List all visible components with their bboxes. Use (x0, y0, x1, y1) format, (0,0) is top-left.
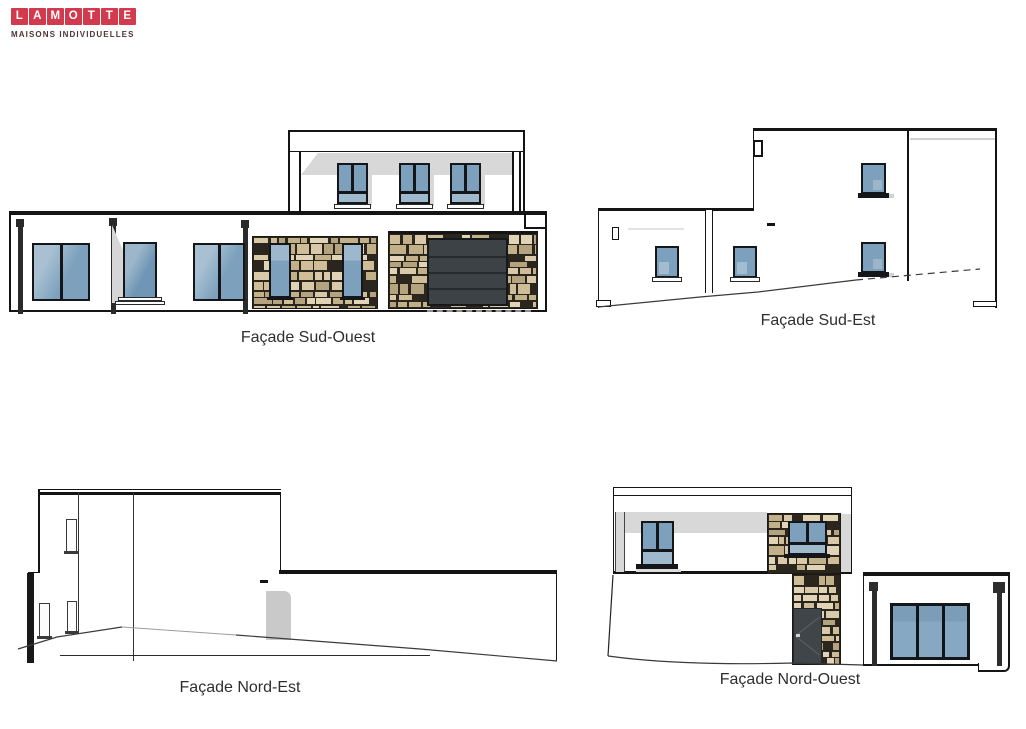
fse-window-sill (652, 277, 682, 282)
fso-door-step (115, 301, 165, 305)
fne-narrow-window-lower-right (67, 601, 77, 632)
stone-block (282, 306, 295, 309)
stone-block (823, 620, 834, 625)
fso-door-window (123, 242, 157, 299)
stone-block (510, 284, 516, 293)
stone-block (833, 643, 839, 651)
ground-line-nord-est-mid (122, 627, 236, 635)
fse-lower-window (861, 242, 886, 273)
stone-block (769, 557, 775, 564)
stone-block (301, 238, 307, 243)
stone-block (254, 255, 268, 260)
fso-floor-line (9, 211, 547, 215)
fse-window-sill (858, 193, 889, 198)
stone-block (316, 298, 331, 304)
stone-block (769, 565, 776, 570)
stone-block (301, 261, 313, 270)
stone-block (412, 276, 428, 283)
fso-garage-door (427, 238, 508, 306)
facade-label-nord-est: Façade Nord-Est (180, 679, 301, 697)
fse-wall-detail (612, 227, 619, 240)
stone-block (819, 595, 829, 601)
fne-roof-line-thin (38, 489, 281, 490)
stone-block (403, 235, 412, 244)
fso-window-sill (334, 204, 371, 209)
fno-door-handle (796, 634, 800, 637)
fso-step-line (524, 227, 547, 229)
stone-block (535, 245, 536, 254)
stone-block (254, 238, 268, 243)
stone-block (315, 255, 330, 260)
stone-block (797, 565, 805, 570)
fso-post-right-2 (519, 152, 521, 214)
stone-block (316, 282, 330, 290)
fso-window-sill (447, 204, 484, 209)
fse-sill-shadow (889, 273, 894, 277)
fse-faint-line (628, 228, 684, 230)
stone-block (533, 268, 536, 274)
stone-block (835, 603, 839, 610)
stone-block (409, 302, 421, 307)
facade-label-nord-ouest: Façade Nord-Ouest (720, 671, 861, 689)
stone-block (302, 282, 314, 290)
fso-downspout (18, 221, 23, 314)
stone-block (832, 652, 839, 657)
fno-door-line (796, 617, 820, 636)
stone-block (512, 276, 525, 283)
fso-step-edge (524, 214, 526, 228)
fno-upper-window-left (641, 521, 674, 566)
stone-block (784, 515, 792, 521)
fne-roof-line (38, 492, 281, 495)
logo-tile: T (101, 8, 118, 25)
logo-tile: A (29, 8, 46, 25)
facade-label-sud-est: Façade Sud-Est (761, 312, 876, 330)
logo-tile: O (65, 8, 82, 25)
stone-block (390, 262, 401, 267)
fne-side-door (266, 591, 291, 640)
fse-window-2 (733, 246, 757, 278)
stone-block (510, 262, 526, 267)
stone-block (519, 245, 532, 254)
stone-block (534, 235, 536, 244)
fno-stone-window (788, 521, 827, 555)
stone-block (829, 587, 837, 593)
fso-stone-window-2 (342, 243, 363, 298)
stone-block (533, 302, 536, 307)
fse-footing-left (596, 300, 611, 307)
fne-window-sill (64, 551, 79, 554)
stone-block (803, 515, 821, 521)
logo-letter-tiles: L A M O T T E (11, 8, 136, 25)
fne-window-sill (65, 631, 79, 634)
fno-corner-shadow (615, 512, 625, 572)
stone-block (267, 306, 280, 309)
stone-block (324, 244, 333, 253)
fne-wall-corner-1 (78, 492, 79, 634)
fse-roof-detail (753, 140, 763, 157)
stone-block (834, 530, 839, 535)
stone-block (509, 235, 518, 244)
fne-shadow-edge (27, 573, 34, 663)
logo-subtitle: MAISONS INDIVIDUELLES (11, 30, 135, 39)
fne-left-edge (38, 489, 40, 573)
fno-door-line (796, 636, 820, 655)
stone-block (805, 587, 817, 593)
fso-window-sill (396, 204, 433, 209)
fne-low-right-edge (556, 570, 558, 661)
stone-block (525, 256, 536, 261)
stone-block (390, 302, 396, 307)
stone-block (406, 256, 418, 261)
stone-block (362, 306, 376, 309)
stone-block (390, 245, 406, 254)
fse-footing-right (973, 301, 997, 307)
fse-sill-shadow (889, 194, 894, 198)
stone-block (296, 255, 313, 260)
fso-window-left (32, 243, 90, 301)
fso-parapet (288, 130, 525, 153)
stone-block (297, 244, 309, 253)
fso-stone-window-1 (269, 243, 291, 298)
stone-block (527, 276, 536, 283)
fse-window-sill (730, 277, 760, 282)
fne-narrow-window-upper (66, 519, 77, 552)
stone-block (515, 295, 527, 300)
fso-window-right (193, 243, 245, 301)
stone-block (819, 587, 827, 593)
fne-narrow-window-lower-left (39, 603, 50, 637)
stone-block (321, 306, 339, 309)
fso-post-right (512, 152, 514, 214)
fne-low-roof-line (279, 570, 557, 574)
stone-block (313, 306, 319, 309)
stone-block (366, 272, 376, 280)
stone-block (348, 306, 360, 309)
fso-window-sill (267, 297, 293, 300)
stone-block (314, 261, 327, 270)
stone-block (823, 652, 829, 657)
fso-upper-window-1 (337, 163, 368, 204)
stone-block (828, 537, 839, 545)
stone-block (823, 515, 839, 521)
fse-window-sill (858, 272, 889, 277)
stone-block (390, 235, 400, 244)
stone-block (803, 595, 817, 601)
fno-base-step (978, 663, 1010, 672)
stone-block (794, 576, 804, 585)
stone-block (310, 238, 328, 243)
fso-window-shadow (430, 166, 434, 206)
stone-block (779, 537, 784, 545)
stone-block (297, 306, 311, 309)
fse-wall-joint (907, 128, 909, 281)
fne-right-edge (280, 492, 282, 572)
stone-block (518, 284, 530, 293)
logo-tile: M (47, 8, 64, 25)
fse-tall-block (753, 128, 997, 308)
stone-block (400, 268, 416, 274)
stone-block (826, 611, 839, 618)
fso-window-shadow (481, 166, 485, 206)
stone-block (520, 268, 531, 274)
fno-window-sill (784, 554, 830, 558)
stone-block (301, 292, 314, 297)
fne-window-sill (37, 636, 52, 639)
stone-block (769, 522, 780, 528)
fse-vent-dash (767, 223, 775, 226)
stone-block (390, 276, 396, 283)
stone-block (794, 595, 801, 601)
stone-block (254, 306, 265, 309)
stone-block (794, 587, 804, 593)
stone-block (390, 268, 397, 274)
stone-block (371, 238, 376, 243)
fno-downspout (872, 590, 877, 666)
stone-block (415, 235, 426, 244)
stone-block (390, 284, 398, 293)
fno-sill-shadow (636, 569, 681, 573)
stone-block (324, 272, 330, 280)
stone-block (254, 282, 263, 290)
stone-block (311, 244, 322, 253)
logo-tile: L (11, 8, 28, 25)
fso-upper-window-2 (399, 163, 430, 204)
stone-block (411, 284, 425, 293)
stone-block (400, 284, 408, 293)
fso-upper-window-3 (450, 163, 481, 204)
stone-block (398, 302, 407, 307)
stone-block (419, 262, 427, 267)
stone-block (331, 238, 339, 243)
stone-block (307, 298, 315, 304)
stone-block (390, 295, 396, 300)
stone-block (769, 537, 778, 545)
stone-block (295, 298, 304, 304)
stone-block (409, 245, 422, 254)
stone-block (833, 627, 839, 635)
stone-block (769, 530, 785, 535)
fse-upper-window (861, 163, 886, 194)
stone-block (315, 292, 327, 297)
stone-block (403, 262, 417, 267)
wall-edge-nord-ouest (608, 575, 613, 656)
stone-block (836, 636, 839, 641)
fno-downspout (997, 592, 1002, 666)
stone-block (826, 576, 834, 585)
fno-bay-window (890, 603, 970, 660)
stone-block (315, 272, 322, 280)
elevation-sheet: L A M O T T E MAISONS INDIVIDUELLES (0, 0, 1026, 729)
fso-dashed-ground (427, 310, 531, 312)
stone-block (254, 272, 269, 280)
fno-stone-shadow (841, 514, 851, 572)
fso-post-left (299, 152, 301, 214)
fne-terrace-line (60, 655, 430, 656)
stone-block (299, 272, 313, 280)
logo-tile: T (83, 8, 100, 25)
stone-block (367, 244, 376, 253)
fse-roof-shadow-line (910, 138, 995, 140)
stone-block (399, 295, 412, 300)
stone-block (521, 235, 532, 244)
stone-block (510, 302, 519, 307)
stone-block (807, 565, 824, 570)
fne-vent-dash (260, 580, 268, 583)
fse-downspout (705, 210, 713, 293)
facade-label-sud-ouest: Façade Sud-Ouest (241, 329, 375, 347)
stone-block (370, 292, 376, 297)
stone-block (254, 292, 264, 297)
fne-wall-corner-2 (133, 492, 134, 661)
fso-window-sill (340, 297, 365, 300)
stone-block (769, 515, 782, 521)
logo-tile: E (119, 8, 136, 25)
fno-parapet-line (613, 495, 852, 497)
fso-window-shadow (368, 166, 372, 206)
stone-block (819, 576, 825, 585)
stone-block (769, 546, 784, 555)
stone-block (529, 295, 536, 300)
stone-block (835, 658, 839, 665)
fse-window-1 (655, 246, 679, 278)
fno-entry-door (793, 608, 822, 664)
stone-block (831, 595, 838, 601)
stone-block (390, 256, 404, 261)
stone-block (827, 658, 834, 665)
